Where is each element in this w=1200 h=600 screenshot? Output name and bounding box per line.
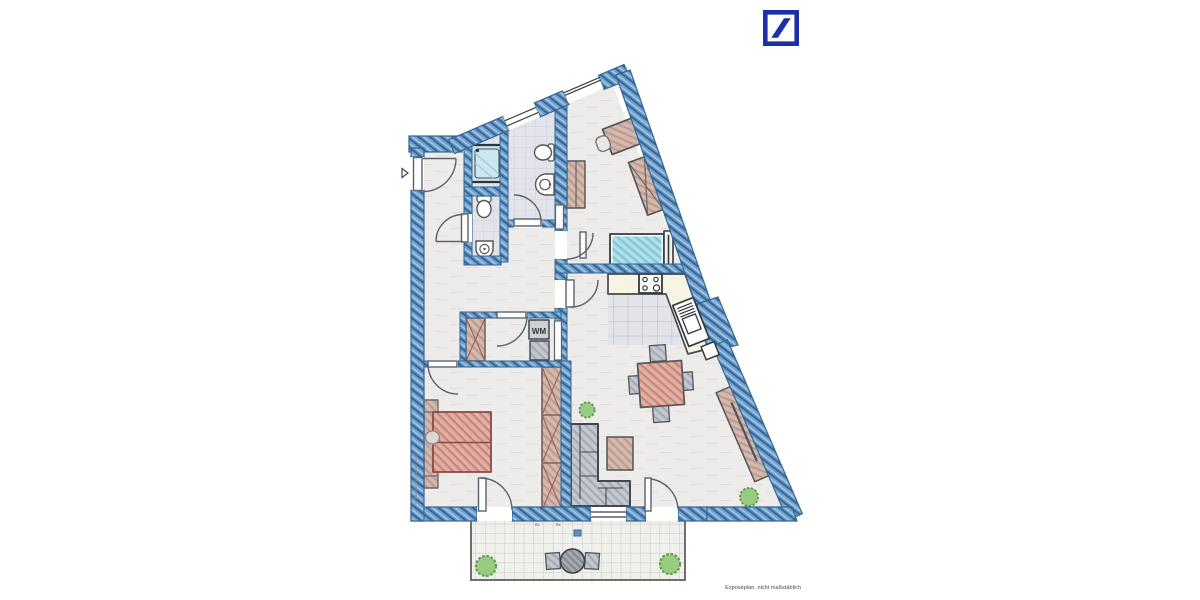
svg-text:WM: WM xyxy=(532,327,547,336)
svg-text:8x: 8x xyxy=(535,522,541,527)
svg-text:8x: 8x xyxy=(556,522,562,527)
svg-text:© Grundriss Exposé 2011: © Grundriss Exposé 2011 xyxy=(412,452,418,504)
svg-text:Exposéplan, nicht maßstäblich: Exposéplan, nicht maßstäblich xyxy=(725,585,801,591)
